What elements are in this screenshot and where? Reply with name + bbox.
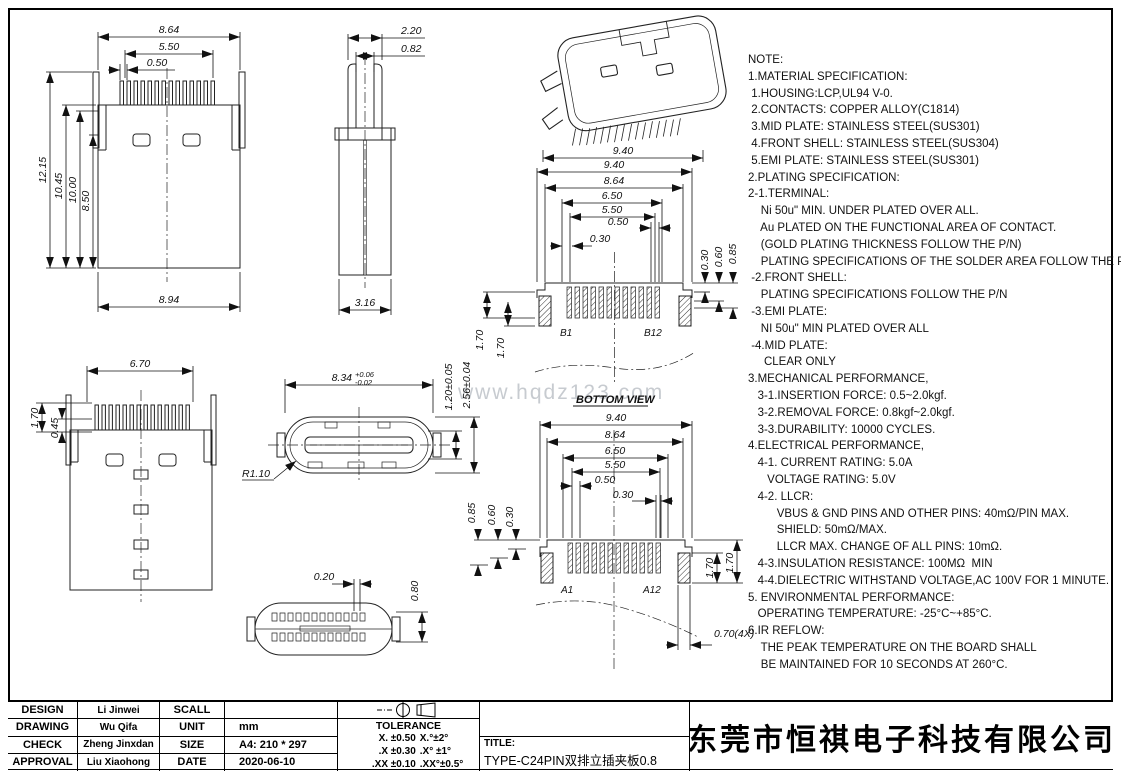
tolerance-row: X. ±0.50 X.°±2° xyxy=(338,732,479,745)
titleblock-size-label: SIZE xyxy=(160,737,225,754)
pin-label-a12: A12 xyxy=(642,585,661,596)
titleblock-size-value: A4: 210 * 297 xyxy=(225,737,338,754)
mount-pad-left xyxy=(539,296,551,326)
drawing-sheet: 8.64 5.50 0.50 12.15 10.45 10.00 8.50 8.… xyxy=(0,0,1121,777)
front-view2-geometry xyxy=(66,390,216,602)
dim-bottom-l1: 1.70 xyxy=(474,330,486,351)
dim-top-r2: 1.70 xyxy=(724,553,736,574)
dim-bottom-d6: 0.30 xyxy=(590,233,611,245)
titleblock-check-name: Zheng Jinxdan xyxy=(78,737,160,754)
titleblock-design-label: DESIGN xyxy=(8,702,78,719)
pad-layout-geometry xyxy=(247,603,400,655)
company-name: 东莞市恒祺电子科技有限公司 xyxy=(690,702,1113,771)
dim-oval-h1: 1.20±0.05 xyxy=(443,364,455,411)
tolerance-angular: .X° ±1° xyxy=(420,745,479,758)
drawing-title: TYPE-C24PIN双排立插夹板0.8 xyxy=(484,750,657,769)
tolerance-linear: .XX ±0.10 xyxy=(338,758,420,771)
pin-label-b12: B12 xyxy=(644,328,662,339)
dim-bottom-r1: 0.30 xyxy=(699,250,711,271)
mating-face-view-drawing: 8.34 +0.06 -0.02 R1.10 1.20±0.05 2.56±0.… xyxy=(230,355,490,490)
tolerance-header: TOLERANCE xyxy=(376,720,441,732)
dim-side-body-width: 3.16 xyxy=(355,297,376,309)
dim-bottom-d3: 6.50 xyxy=(602,190,623,202)
dim-bottom-d1: 9.40 xyxy=(604,159,625,171)
tolerance-row: .X ±0.30 .X° ±1° xyxy=(338,745,479,758)
titleblock-check-label: CHECK xyxy=(8,737,78,754)
bottom-view-geometry xyxy=(535,252,695,382)
contact-pins xyxy=(95,405,189,430)
dim-oval-width: 8.34 xyxy=(332,372,353,384)
pad-row-top xyxy=(272,613,365,621)
tolerance-angular: X.°±2° xyxy=(420,732,479,745)
titleblock-date-value: 2020-06-10 xyxy=(225,754,338,771)
pad-row-bottom xyxy=(272,633,365,641)
pin-label-a1: A1 xyxy=(560,585,573,596)
dim-oval-h2: 2.56±0.04 xyxy=(461,362,473,410)
dim-front-mid-width: 5.50 xyxy=(159,41,180,53)
solder-pins-b xyxy=(567,287,660,318)
front-view-drawing: 8.64 5.50 0.50 12.15 10.45 10.00 8.50 8.… xyxy=(20,10,285,330)
dim-front2-h2: 0.45 xyxy=(49,418,61,439)
titleblock-unit-value: mm xyxy=(225,719,338,736)
tolerance-linear: .X ±0.30 xyxy=(338,745,420,758)
tolerance-linear: X. ±0.50 xyxy=(338,732,420,745)
dim-front2-h1: 1.70 xyxy=(29,408,41,429)
title-label: TITLE: xyxy=(484,738,515,749)
dim-front-pitch: 0.50 xyxy=(147,57,168,69)
mount-pad-right xyxy=(679,296,691,326)
mount-pad-right xyxy=(678,553,690,583)
dim-front-h2: 10.45 xyxy=(53,173,65,199)
dim-front2-width: 6.70 xyxy=(130,358,151,370)
dim-bottom-d4: 5.50 xyxy=(602,204,623,216)
third-angle-projection-icon xyxy=(377,702,441,718)
mount-pad-left xyxy=(541,553,553,583)
dim-bottom-d5: 0.50 xyxy=(608,216,629,228)
dim-front-outer-width: 8.64 xyxy=(159,24,180,36)
dim-bottom-l2: 1.70 xyxy=(495,338,507,359)
dim-top-d3: 6.50 xyxy=(605,445,626,457)
title-upper-empty-cell xyxy=(480,702,690,737)
titleblock-date-label: DATE xyxy=(160,754,225,771)
dim-front-h1: 12.15 xyxy=(37,157,49,183)
dim-top-d1: 9.40 xyxy=(606,412,627,424)
dim-top-d6: 0.30 xyxy=(613,489,634,501)
tolerance-row: .XX ±0.10 .XX°±0.5° xyxy=(338,758,479,771)
tolerance-angular: .XX°±0.5° xyxy=(420,758,479,771)
dim-front-h3: 10.00 xyxy=(67,177,79,203)
dim-front-bottom-width: 8.94 xyxy=(159,294,180,306)
dim-top-l3: 0.30 xyxy=(504,507,516,528)
dim-oval-radius: R1.10 xyxy=(242,468,270,480)
dim-bottom-r3: 0.85 xyxy=(727,244,739,265)
dim-side-slot-width: 0.82 xyxy=(401,43,422,55)
front-view-geometry xyxy=(93,68,245,282)
tolerance-cell: TOLERANCE X. ±0.50 X.°±2° .X ±0.30 .X° ±… xyxy=(338,719,480,771)
dim-oval-tol-down: -0.02 xyxy=(355,378,373,387)
dim-top-d5: 0.50 xyxy=(595,474,616,486)
oval-geometry xyxy=(268,407,450,483)
dim-front-h4: 8.50 xyxy=(80,191,92,212)
isometric-geometry xyxy=(529,13,732,158)
dim-top-d2: 8.64 xyxy=(605,429,626,441)
titleblock-unit-label: UNIT xyxy=(160,719,225,736)
pin-label-b1: B1 xyxy=(560,328,572,339)
dim-bottom-r2: 0.60 xyxy=(713,247,725,268)
titleblock-design-name: Li Jinwei xyxy=(78,702,160,719)
notes-block: NOTE: 1.MATERIAL SPECIFICATION: 1.HOUSIN… xyxy=(748,52,1116,697)
title-block: DESIGN Li Jinwei SCALL DRAWING Wu Qifa U… xyxy=(8,700,1113,769)
top-view-drawing: 9.40 8.64 6.50 5.50 0.50 0.30 0.85 0.60 … xyxy=(460,405,780,705)
dim-top-l2: 0.60 xyxy=(486,505,498,526)
projection-symbol-cell xyxy=(338,702,480,719)
titleblock-approval-name: Liu Xiaohong xyxy=(78,754,160,771)
dim-boval-d1: 0.20 xyxy=(314,571,335,583)
dim-top-r1: 1.70 xyxy=(704,558,716,579)
break-line xyxy=(536,601,698,637)
title-cell: TITLE: TYPE-C24PIN双排立插夹板0.8 xyxy=(480,737,690,772)
titleblock-drawing-label: DRAWING xyxy=(8,719,78,736)
titleblock-approval-label: APPROVAL xyxy=(8,754,78,771)
titleblock-drawing-name: Wu Qifa xyxy=(78,719,160,736)
dim-top-l1: 0.85 xyxy=(466,503,478,524)
titleblock-scale-label: SCALL xyxy=(160,702,225,719)
dim-boval-d2: 0.80 xyxy=(409,581,421,602)
dim-top-d4: 5.50 xyxy=(605,459,626,471)
pad-layout-view-drawing: 0.20 0.80 xyxy=(228,553,463,678)
dim-side-clip-width: 2.20 xyxy=(400,25,422,37)
side-view-geometry xyxy=(335,54,395,288)
dim-bottom-d2: 8.64 xyxy=(604,175,625,187)
break-line xyxy=(535,352,695,372)
titleblock-scale-value xyxy=(225,702,338,719)
front-view-dimensions xyxy=(46,32,240,312)
